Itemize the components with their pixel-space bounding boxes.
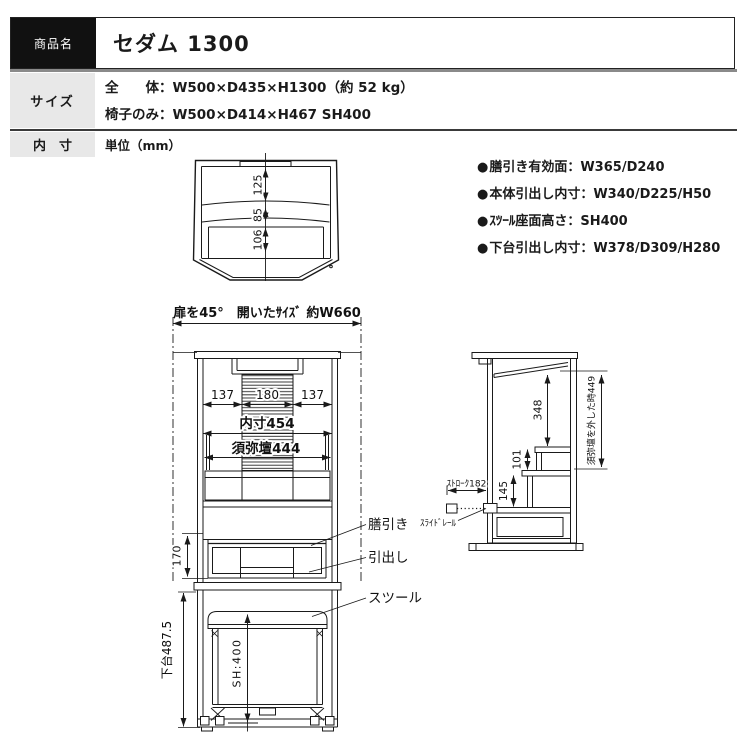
dim-170-label: 170 [171,546,184,567]
seat-height-label: SH:400 [231,639,244,688]
tray-front-panel [203,507,332,540]
inner-width-454-label: 内寸454 [239,415,294,432]
product-name-row: 商品名 セダム 1300 [10,17,735,69]
product-label: 商品名 [34,35,73,52]
product-name: セダム 1300 [113,18,250,68]
size-line-overall: 全 体：W500×D435×H1300（約 52 kg） [105,75,414,102]
slide-rail-end [447,504,458,513]
top-depth-106-label: 106 [252,230,265,251]
spec-sheet-page: { "header": { "product_label": "商品名", "p… [0,0,750,750]
shumidan-removed-449-label: 須弥壇を外した時449 [586,376,598,465]
stool-label: スツール [368,591,422,607]
top-depth-125-label: 125 [252,175,265,196]
stroke-182-label: ｽﾄﾛｰｸ182 [447,479,487,490]
dim-145-label: 145 [498,481,510,501]
row-divider [10,129,737,131]
product-label-cell: 商品名 [11,18,96,68]
technical-drawing: 125 85 106 扉を45° 開いたｻｲｽﾞ 約W660 [0,145,750,750]
size-line-chair: 椅子のみ：W500×D414×H467 SH400 [105,102,414,129]
dim-180-label: 180 [256,388,279,402]
tray-label: 膳引き [368,516,409,533]
dim-137-right-label: 137 [301,388,324,402]
size-label: サイズ [30,91,75,110]
slide-rail-label: ｽﾗｲﾄﾞﾚｰﾙ [420,518,457,529]
side-view-drawing: 348 101 145 須弥壇を外した時449 ｽﾄﾛｰｸ182 ｽﾗｲﾄﾞﾚｰ… [420,353,608,551]
shumidan-444-label: 須弥壇444 [231,440,301,457]
drawer-label: 引出し [368,550,409,566]
dim-137-left-label: 137 [211,388,234,402]
row-divider [10,69,737,72]
dim-101-label: 101 [512,449,524,469]
front-view-drawing: 扉を45° 開いたｻｲｽﾞ 約W660 137 180 137 [159,305,422,732]
top-view-drawing: 125 85 106 [194,153,339,281]
drawer-front [213,548,322,574]
lower-base-height-label: 下台487.5 [159,621,174,679]
doors-open-width-label: 扉を45° 開いたｻｲｽﾞ 約W660 [173,305,361,321]
top-depth-85-label: 85 [252,208,265,222]
size-label-cell: サイズ [10,73,95,128]
stool-drawing [201,612,335,726]
dim-348-label: 348 [532,400,545,421]
size-values: 全 体：W500×D435×H1300（約 52 kg） 椅子のみ：W500×D… [105,75,414,129]
